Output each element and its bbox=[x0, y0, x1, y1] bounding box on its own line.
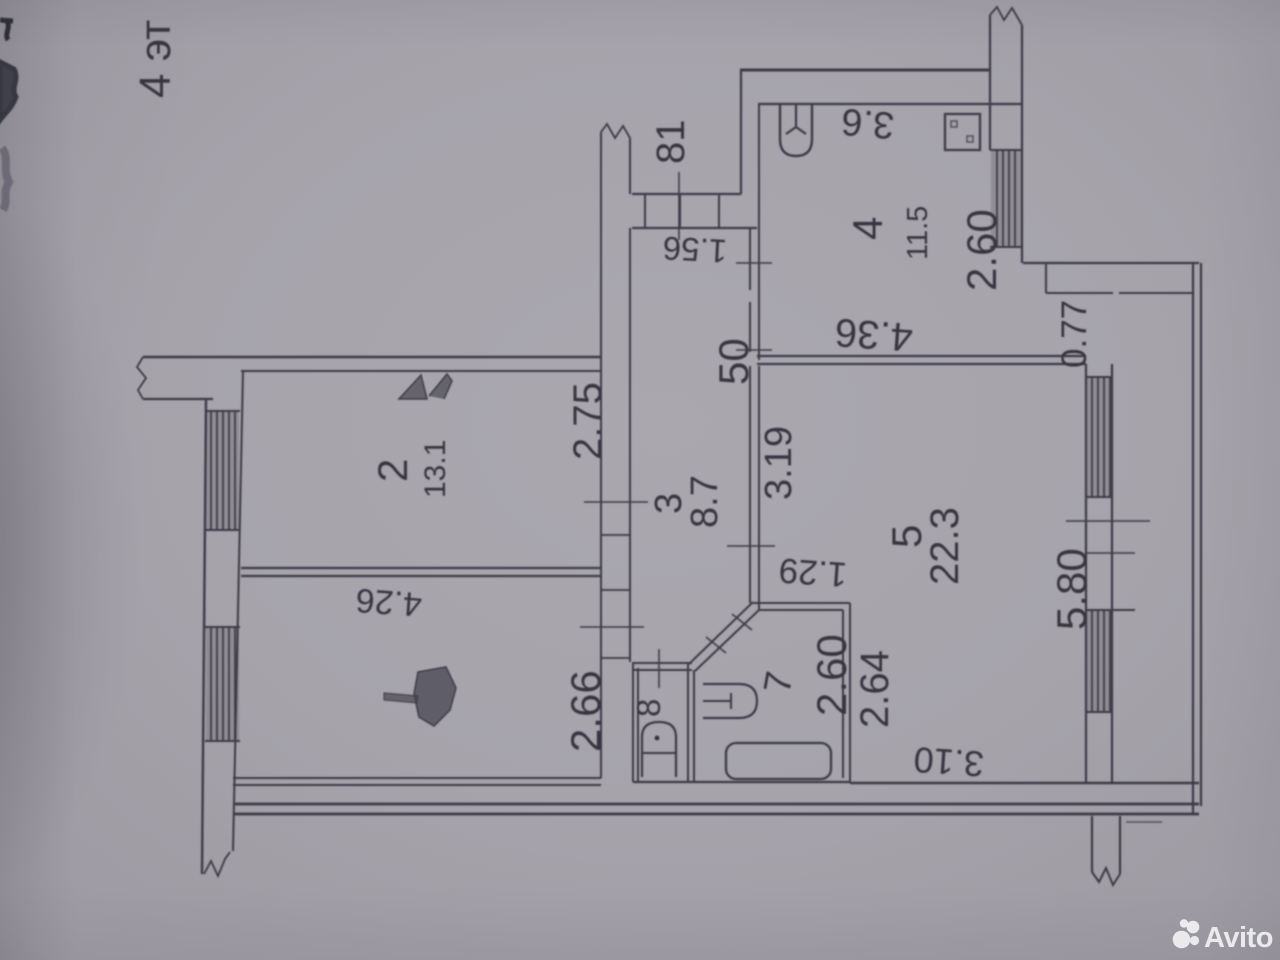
svg-text:1.29: 1.29 bbox=[778, 550, 849, 594]
svg-text:81: 81 bbox=[649, 120, 693, 165]
svg-text:13.1: 13.1 bbox=[419, 440, 452, 498]
svg-text:3.19: 3.19 bbox=[758, 426, 800, 500]
svg-text:2: 2 bbox=[369, 459, 416, 482]
svg-text:11.5: 11.5 bbox=[902, 206, 934, 260]
svg-text:3.6: 3.6 bbox=[840, 100, 896, 146]
svg-text:4: 4 bbox=[844, 217, 891, 240]
svg-text:2.75: 2.75 bbox=[566, 382, 610, 460]
svg-text:Avito: Avito bbox=[1204, 922, 1273, 954]
svg-text:2.60: 2.60 bbox=[808, 634, 855, 716]
svg-text:5.80: 5.80 bbox=[1048, 548, 1095, 630]
svg-text:3.10: 3.10 bbox=[912, 739, 985, 785]
svg-text:1.56: 1.56 bbox=[662, 230, 728, 270]
svg-text:2.64: 2.64 bbox=[853, 650, 897, 728]
svg-text:4 эт: 4 эт bbox=[131, 20, 180, 98]
svg-text:4.26: 4.26 bbox=[355, 581, 424, 624]
svg-text:0.77: 0.77 bbox=[1055, 300, 1094, 368]
svg-text:7: 7 bbox=[757, 668, 802, 696]
svg-text:4.36: 4.36 bbox=[833, 310, 914, 359]
svg-text:8: 8 bbox=[630, 699, 667, 717]
svg-text:2.60: 2.60 bbox=[958, 209, 1005, 291]
svg-text:22.3: 22.3 bbox=[923, 507, 967, 585]
svg-text:8.7: 8.7 bbox=[684, 475, 726, 528]
